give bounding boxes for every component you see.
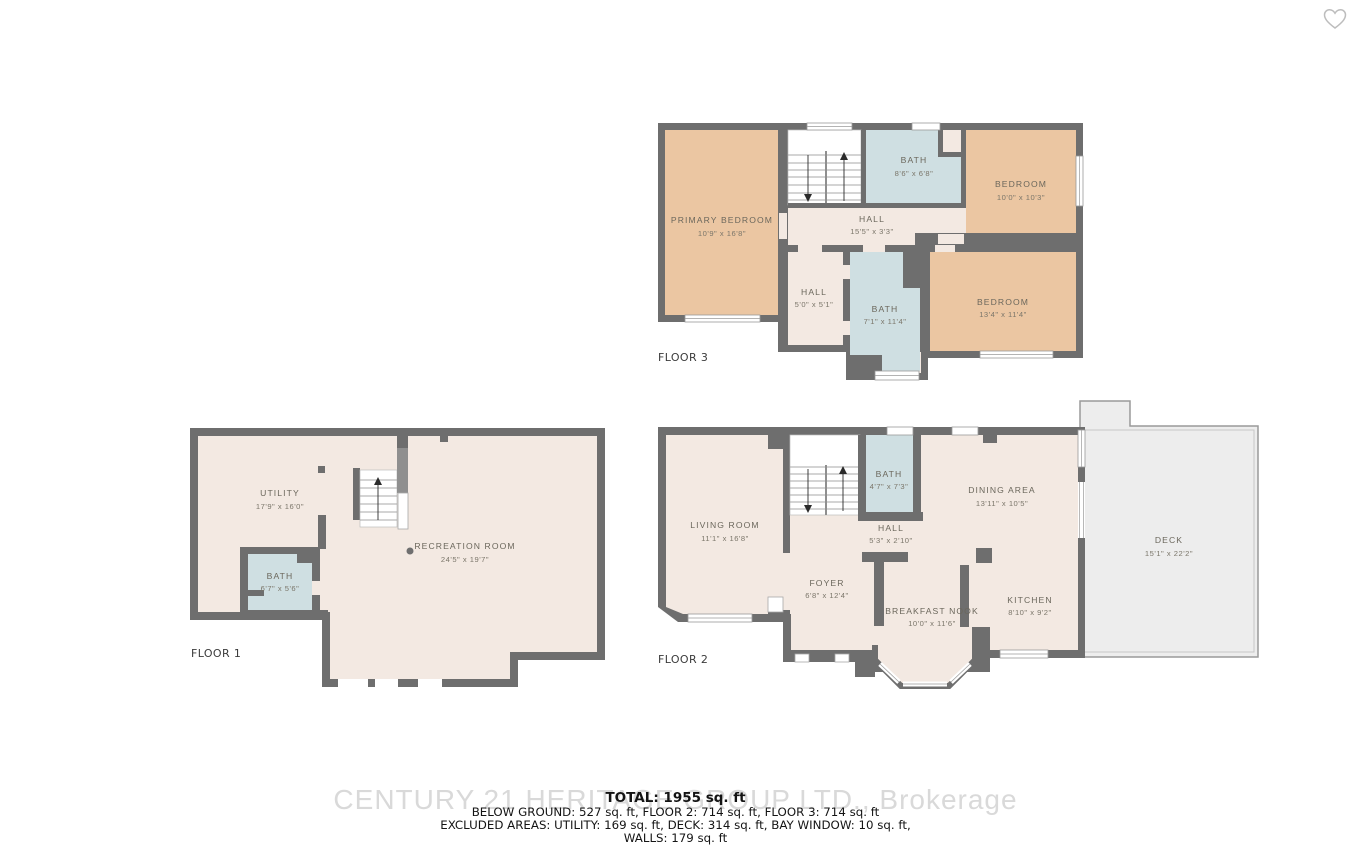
support-column xyxy=(407,548,414,555)
room-dims: 15'1" x 22'2" xyxy=(1145,549,1193,558)
floor-3-label: FLOOR 3 xyxy=(658,351,708,364)
room-label: BATH xyxy=(901,155,928,165)
room-dims: 8'6" x 6'8" xyxy=(895,169,934,178)
room-label: BEDROOM xyxy=(995,179,1047,189)
room-dims: 11'1" x 16'8" xyxy=(701,534,749,543)
favorite-button[interactable] xyxy=(1320,6,1350,34)
entry-door xyxy=(795,654,809,662)
room-dims: 17'9" x 16'0" xyxy=(256,502,304,511)
total-area-text: TOTAL: 1955 sq. ft xyxy=(0,791,1351,806)
room-dims: 4'7" x 7'3" xyxy=(870,482,909,491)
floorplan-page: PRIMARY BEDROOM 10'9" x 16'8" BATH 8'6" … xyxy=(0,0,1351,866)
door-opening xyxy=(798,245,822,252)
room-label: BATH xyxy=(267,571,294,581)
room-label: BATH xyxy=(876,469,903,479)
door-opening xyxy=(779,213,787,239)
room-label: HALL xyxy=(878,523,904,533)
floor-2-label: FLOOR 2 xyxy=(658,653,708,666)
stairwell-floor2 xyxy=(790,435,860,515)
bay-window xyxy=(875,645,975,686)
room-deck: DECK 15'1" x 22'2" xyxy=(1080,401,1258,657)
room-label: HALL xyxy=(801,287,827,297)
entry-door xyxy=(835,654,849,662)
room-label: RECREATION ROOM xyxy=(414,541,515,551)
stairwell-floor3 xyxy=(788,130,861,205)
door-opening xyxy=(375,679,398,687)
room-dims: 13'4" x 11'4" xyxy=(979,310,1027,319)
door-opening xyxy=(338,679,368,687)
walls-area-text: WALLS: 179 sq. ft xyxy=(0,832,1351,845)
area-summary: TOTAL: 1955 sq. ft BELOW GROUND: 527 sq.… xyxy=(0,791,1351,846)
room-dims: 6'7" x 5'6" xyxy=(261,584,300,593)
room-label: HALL xyxy=(859,214,885,224)
door-opening xyxy=(863,245,885,252)
floor-1-plan: UTILITY 17'9" x 16'0" RECREATION ROOM 24… xyxy=(185,420,610,692)
door-opening xyxy=(843,265,850,279)
room-label: UTILITY xyxy=(260,488,300,498)
door-opening xyxy=(938,234,964,244)
room-label: BREAKFAST NOOK xyxy=(885,606,979,616)
room-dims: 5'0" x 5'1" xyxy=(795,300,834,309)
room-label: DECK xyxy=(1155,535,1183,545)
door-opening xyxy=(418,679,442,687)
room-dims: 10'0" x 10'3" xyxy=(997,193,1045,202)
room-dims: 13'11" x 10'5" xyxy=(976,499,1028,508)
door-opening xyxy=(935,245,955,252)
floor-3-plan: PRIMARY BEDROOM 10'9" x 16'8" BATH 8'6" … xyxy=(650,115,1095,397)
room-dims: 10'0" x 11'6" xyxy=(908,619,956,628)
room-label: BEDROOM xyxy=(977,297,1029,307)
room-dims: 5'3" x 2'10" xyxy=(869,536,912,545)
room-dims: 24'5" x 19'7" xyxy=(441,555,489,564)
room-label: KITCHEN xyxy=(1007,595,1052,605)
door-opening xyxy=(843,321,850,335)
room-dims: 10'9" x 16'8" xyxy=(698,229,746,238)
room-dims: 8'10" x 9'2" xyxy=(1008,608,1051,617)
closet-floor2 xyxy=(768,597,783,612)
heart-icon xyxy=(1321,6,1349,32)
room-dims: 15'5" x 3'3" xyxy=(850,227,893,236)
room-label: LIVING ROOM xyxy=(690,520,759,530)
room-label: BATH xyxy=(872,304,899,314)
room-dims: 6'8" x 12'4" xyxy=(805,591,848,600)
room-dims: 7'1" x 11'4" xyxy=(864,317,907,326)
floor-1-label: FLOOR 1 xyxy=(191,647,241,660)
patio-door xyxy=(1078,482,1085,538)
room-label: PRIMARY BEDROOM xyxy=(671,215,773,225)
floor-2-plan: DECK 15'1" x 22'2" xyxy=(650,395,1270,715)
room-label: DINING AREA xyxy=(968,485,1036,495)
room-label: FOYER xyxy=(809,578,844,588)
